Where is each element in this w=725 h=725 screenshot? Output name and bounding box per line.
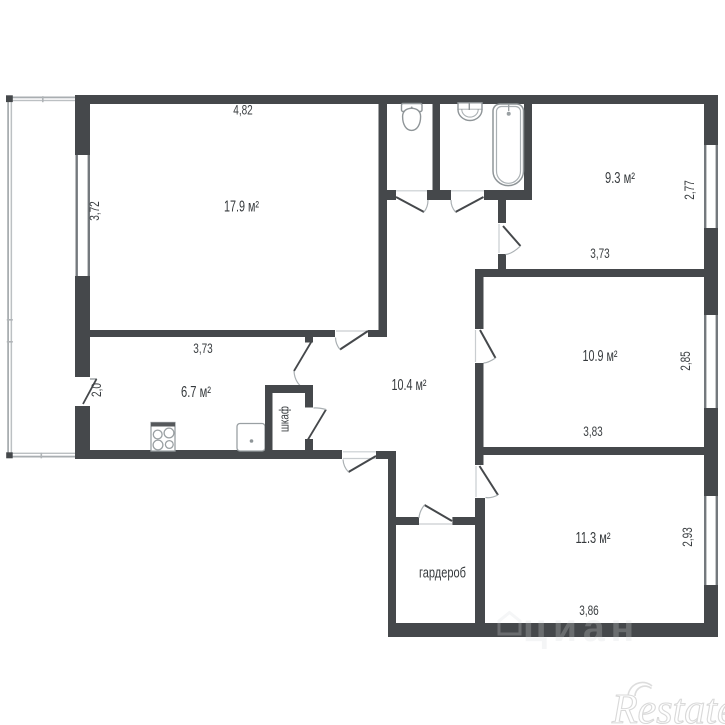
svg-text:3,73: 3,73 [193,341,213,356]
svg-text:Restate: Restate [611,687,725,725]
svg-text:17.9 м²: 17.9 м² [224,199,259,216]
svg-text:циан: циан [523,607,640,650]
svg-text:2,85: 2,85 [678,351,693,371]
svg-text:10.4 м²: 10.4 м² [392,377,427,394]
svg-text:4,82: 4,82 [233,103,253,118]
svg-text:3,83: 3,83 [583,424,603,439]
svg-text:2,93: 2,93 [680,527,695,547]
svg-text:2,0: 2,0 [89,383,104,397]
svg-text:3,73: 3,73 [590,246,610,261]
svg-text:2,77: 2,77 [682,180,697,200]
svg-text:гардероб: гардероб [419,566,466,582]
svg-text:11.3 м²: 11.3 м² [576,530,611,547]
svg-text:шкаф: шкаф [278,406,292,432]
svg-text:9.3 м²: 9.3 м² [605,170,635,187]
svg-text:10.9 м²: 10.9 м² [583,348,618,365]
svg-text:6.7 м²: 6.7 м² [181,384,211,401]
svg-text:3,72: 3,72 [87,201,102,221]
